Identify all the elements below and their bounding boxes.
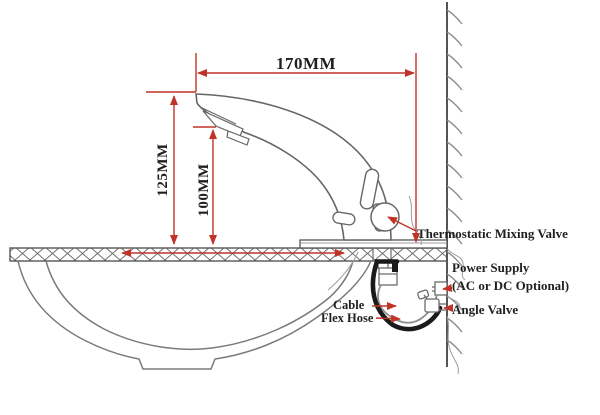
leader-flex-hose	[376, 318, 400, 319]
basin-inner-line	[46, 261, 353, 349]
wall-hatch-mark	[447, 32, 462, 46]
leader-power-supply	[443, 288, 452, 289]
wall-hatch-mark	[447, 54, 462, 68]
mixing-valve-knob	[371, 203, 399, 231]
wall-hatch-mark	[447, 186, 462, 200]
wall-hatch-mark	[447, 164, 462, 178]
dimension-lines	[122, 53, 452, 319]
wall-hatch-mark	[447, 10, 462, 24]
countertop	[10, 248, 447, 261]
wall-hatch-mark	[447, 120, 462, 134]
wall-hatch-mark	[447, 98, 462, 112]
faucet-body	[196, 94, 399, 240]
faucet-outline	[196, 94, 391, 240]
callout-thermostatic-mixing-valve: Thermostatic Mixing Valve	[417, 226, 568, 242]
dimension-label-125mm: 125MM	[155, 130, 171, 210]
wall-hatch-mark	[447, 76, 462, 90]
callout-power-supply: Power Supply	[452, 260, 529, 276]
callout-flex-hose: Flex Hose	[321, 311, 373, 326]
callout-power-supply-option: (AC or DC Optional)	[452, 278, 569, 294]
basin-outer-line	[18, 261, 371, 369]
wall-hatch-mark	[447, 142, 462, 156]
wall-hatch-mark	[447, 318, 462, 332]
wall-hatch-mark	[447, 208, 462, 222]
dimension-label-170mm: 170MM	[246, 54, 366, 74]
basin-bowl	[18, 261, 371, 369]
callout-angle-valve: Angle Valve	[452, 302, 518, 318]
dimension-label-100mm: 100MM	[196, 150, 212, 230]
faucet-installation-diagram: 170MM 125MM 100MM Thermostatic Mixing Va…	[0, 0, 600, 415]
